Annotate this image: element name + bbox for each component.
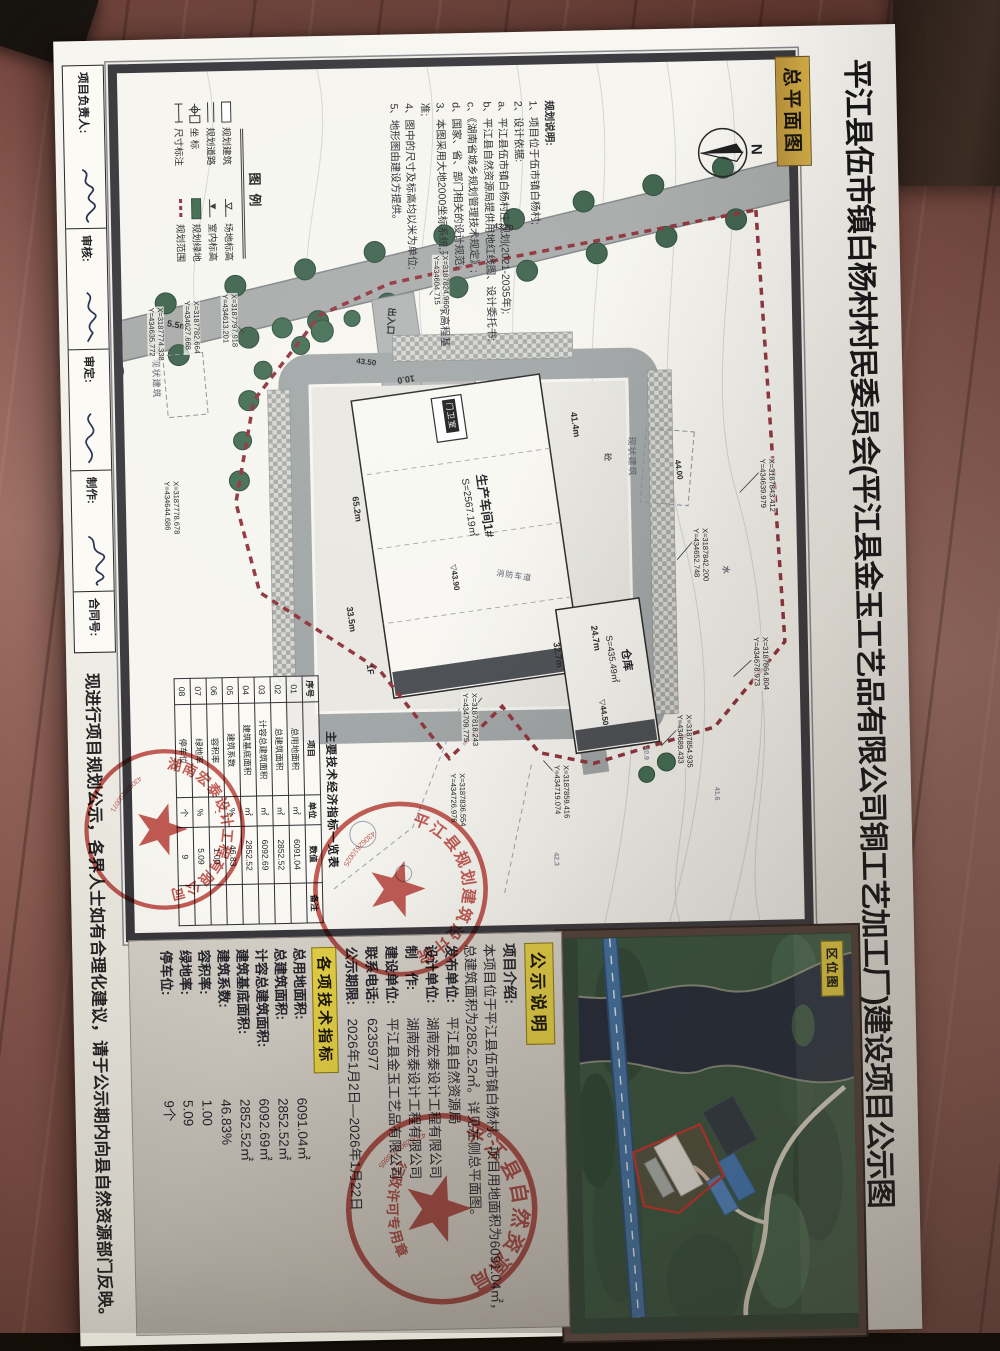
legend-label: 室内标高 bbox=[207, 223, 222, 261]
legend-label: 规划道路 bbox=[205, 127, 220, 165]
title-block: 项目负责人: 审核: 审定: 制作: 合同号: bbox=[62, 65, 116, 654]
existing-building-label: 现状建筑 bbox=[626, 436, 640, 476]
stamp-serial: 43062610025 bbox=[341, 829, 378, 868]
cell: 2852.52 bbox=[273, 826, 290, 884]
photo-of-site-plan-document: { "sheet": { "main_title": "平江县伍市镇白杨村村民委… bbox=[0, 0, 1000, 1333]
title-block-cell: 项目负责人: bbox=[63, 66, 106, 230]
coordinate-label: X=3187843.412Y=434639.979 bbox=[758, 458, 776, 514]
cell: 06 bbox=[206, 678, 223, 704]
coordinate-y: Y=434635.772 bbox=[147, 308, 157, 361]
coordinate-label: X=3187778.678Y=434644.686 bbox=[162, 480, 180, 536]
cell: 6092.69 bbox=[257, 826, 274, 884]
legend-label: 规划绿地 bbox=[191, 224, 206, 262]
svg-text:430626100071: 430626100071 bbox=[108, 774, 143, 813]
planned-road-swatch-icon bbox=[205, 101, 217, 123]
title-block-cell: 合同号: bbox=[74, 591, 115, 652]
entrance-label: 出入口 bbox=[384, 307, 399, 335]
natural-resources-bureau-stamp: 平江县自然资源局 行政许可专用章 43062800023865 bbox=[340, 1107, 544, 1311]
north-label: N bbox=[747, 144, 764, 155]
coordinate-label: X=3187797.918Y=434613.201 bbox=[220, 293, 238, 349]
design-company-stamp: 湖南宏泰设计工程有限公司 430626100071 bbox=[78, 743, 252, 917]
cell: 07 bbox=[190, 678, 207, 704]
spot-elevation: 42.3 bbox=[552, 852, 559, 866]
coordinate-y: Y=434644.686 bbox=[162, 481, 172, 534]
cell: 02 bbox=[270, 676, 287, 702]
cell: 6091.04 bbox=[289, 825, 306, 883]
coordinate-y: Y=434627.668 bbox=[183, 301, 193, 354]
econ-header: 项目 bbox=[303, 702, 321, 796]
cell: 03 bbox=[254, 677, 271, 703]
dark-object-top-right bbox=[893, 0, 1000, 186]
field-label: 制作: bbox=[83, 477, 100, 504]
location-map-label: 区位图 bbox=[820, 940, 844, 996]
workshop-floors: 1F bbox=[365, 663, 376, 675]
cell: ㎡ bbox=[257, 796, 274, 826]
plan-sheet-label: 总平面图 bbox=[775, 56, 812, 167]
coordinate-swatch-icon bbox=[189, 102, 201, 124]
cell bbox=[258, 884, 275, 924]
legend: 图例 规划建筑 场地标高 规划道路 室内标高 坐 标 规划绿地 尺寸标注 规划范… bbox=[171, 100, 267, 288]
coordinate-label: X=3187774.338Y=434635.772 bbox=[147, 306, 165, 362]
svg-text:平江县自然资源局: 平江县自然资源局 bbox=[460, 1120, 535, 1295]
coordinate-y: Y=434689.433 bbox=[675, 715, 685, 768]
coordinate-label: X=3187824.960Y=434604.715 bbox=[432, 254, 450, 310]
planned-building-swatch-icon bbox=[221, 101, 233, 123]
satellite-image bbox=[577, 932, 859, 1320]
notice-header: 公示说明 bbox=[524, 942, 555, 1045]
coordinate-y: Y=434652.748 bbox=[692, 528, 702, 581]
cell: ㎡ bbox=[273, 796, 290, 826]
coordinate-label: X=3187859.416Y=434719.074 bbox=[552, 764, 570, 820]
indicator-value: 6092.69㎡ bbox=[254, 1098, 274, 1161]
signature bbox=[77, 412, 106, 469]
coordinate-y: Y=434613.201 bbox=[221, 294, 231, 347]
signature bbox=[79, 533, 108, 590]
stamp-banner: 行政许可专用章 bbox=[384, 1158, 412, 1260]
indicator-value: 6091.04㎡ bbox=[292, 1097, 312, 1160]
coordinate-label: X=3187782.664Y=434627.668 bbox=[183, 300, 201, 356]
indicator-label: 绿地率: bbox=[175, 950, 197, 1100]
signature bbox=[72, 168, 101, 227]
plan-document-sheet: 平江县伍市镇白杨村村民委员会(平江县金玉工艺品有限公司铜工艺加工厂)建设项目公示… bbox=[53, 24, 922, 1346]
legend-label: 规划范围 bbox=[175, 224, 190, 262]
indicator-value: 2852.52㎡ bbox=[235, 1099, 255, 1162]
legend-label: 场地标高 bbox=[223, 223, 238, 261]
coordinate-label: X=3187842.200Y=434652.748 bbox=[691, 527, 709, 583]
indicator-value: 5.09 bbox=[178, 1100, 198, 1127]
coordinate-label: X=3187864.804Y=434678.973 bbox=[752, 636, 770, 692]
planning-boundary-swatch-icon bbox=[175, 198, 187, 220]
indicator-value: 2852.52㎡ bbox=[273, 1098, 293, 1161]
spot-elevation: 41.6 bbox=[713, 787, 720, 801]
coordinate-y: Y=434604.715 bbox=[432, 256, 442, 309]
spot-elevation: 40.9 bbox=[642, 746, 649, 760]
coordinate-y: Y=434709.775 bbox=[461, 693, 471, 746]
water-mark: 水 bbox=[720, 566, 731, 574]
svg-text:行政许可专用章: 行政许可专用章 bbox=[384, 1158, 412, 1260]
planning-institute-stamp: 平江县规划建筑设计院 43062610025 bbox=[306, 795, 495, 984]
coordinate-label: X=3187818.243Y=434709.775 bbox=[461, 692, 479, 748]
planning-notes: 规划说明: 1、项目位于伍市镇白杨村; 2、设计依据: a、平江县伍市镇白杨村庄… bbox=[385, 100, 561, 356]
signature bbox=[74, 291, 103, 348]
cell: 08 bbox=[174, 678, 191, 704]
econ-header: 序号 bbox=[302, 676, 319, 702]
cell: 05 bbox=[222, 677, 239, 703]
field-label: 审定: bbox=[81, 356, 98, 383]
coordinate-label: X=3187854.935Y=434689.433 bbox=[675, 713, 693, 769]
title-block-cell: 制作: bbox=[71, 471, 114, 593]
cell: 总用地面积 bbox=[287, 702, 305, 796]
coordinate-y: Y=434639.979 bbox=[758, 459, 768, 512]
title-block-cell: 审定: bbox=[69, 350, 112, 472]
indicator-label: 停车位: bbox=[156, 950, 178, 1100]
field-value: 6235977 bbox=[362, 1018, 383, 1071]
note-line: 3、本图采用大地2000坐标系统,采用1985国家高程基准; bbox=[416, 102, 452, 355]
indicator-label: 总用地面积: bbox=[289, 947, 311, 1097]
field-label: 项目负责人: bbox=[75, 72, 92, 134]
title-block-cell: 审核: bbox=[66, 229, 109, 351]
cell: 04 bbox=[238, 677, 255, 703]
dimension-swatch-icon bbox=[173, 102, 185, 124]
indicator-label: 建筑基底面积: bbox=[232, 949, 254, 1099]
cell: 总建筑面积 bbox=[271, 702, 289, 796]
coordinate-y: Y=434678.973 bbox=[752, 637, 762, 690]
indicator-label: 计容总建筑面积: bbox=[251, 948, 273, 1098]
site-elevation-swatch-icon bbox=[223, 197, 235, 219]
cell: 01 bbox=[286, 676, 303, 702]
legend-label: 规划建筑 bbox=[221, 127, 236, 165]
indicator-value: 9个 bbox=[159, 1100, 178, 1121]
field-label: 审核: bbox=[78, 235, 95, 262]
planned-green-swatch-icon bbox=[191, 198, 203, 220]
stamp-bureau-name: 平江县自然资源局 bbox=[460, 1120, 535, 1295]
location-map: 区位图 bbox=[556, 925, 867, 1341]
cell: 计容总建筑面积 bbox=[255, 703, 273, 797]
cell bbox=[274, 883, 291, 923]
field-label: 合同号: bbox=[86, 598, 103, 637]
indoor-elevation-swatch-icon bbox=[207, 197, 219, 219]
legend-label: 尺寸标注 bbox=[173, 128, 188, 166]
indicator-label: 总建筑面积: bbox=[270, 948, 292, 1098]
svg-text:43062610025: 43062610025 bbox=[341, 829, 378, 868]
indicator-label: 建筑系数: bbox=[213, 949, 235, 1099]
cell bbox=[290, 883, 307, 923]
legend-label: 坐 标 bbox=[189, 128, 203, 150]
cell: ㎡ bbox=[289, 795, 306, 825]
concrete-mark: 砼 bbox=[602, 453, 613, 461]
legend-title: 图例 bbox=[240, 128, 267, 258]
existing-building-label: 现状建筑 bbox=[150, 358, 164, 398]
indicator-value: 1.00 bbox=[197, 1099, 217, 1126]
indicator-value: 46.83% bbox=[216, 1099, 236, 1145]
stamp-serial: 430626100071 bbox=[108, 774, 143, 813]
indicator-label: 容积率: bbox=[194, 949, 216, 1099]
coordinate-y: Y=434719.074 bbox=[552, 765, 562, 818]
